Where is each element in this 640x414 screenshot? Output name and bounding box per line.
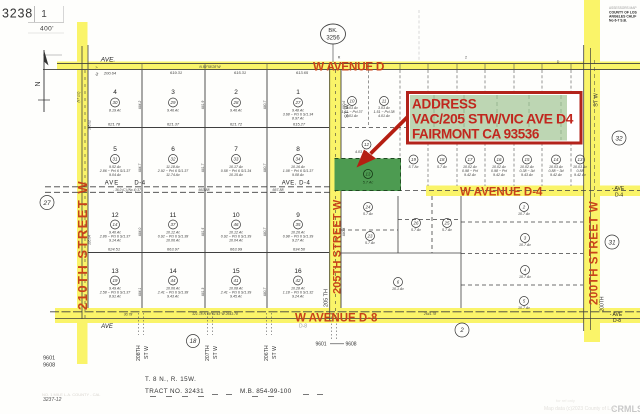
svg-text:W AVENUE D-8: W AVENUE D-8 (295, 313, 378, 325)
svg-text:N: N (35, 81, 42, 86)
svg-text:1: 1 (296, 89, 300, 96)
svg-text:2: 2 (234, 89, 238, 96)
svg-text:661.3: 661.3 (201, 288, 205, 297)
svg-text:8: 8 (296, 146, 300, 153)
svg-text:19: 19 (113, 278, 118, 283)
svg-text:46: 46 (234, 222, 239, 227)
svg-text:AVE: AVE (100, 324, 114, 330)
svg-text:5.7 Ac: 5.7 Ac (365, 241, 375, 245)
svg-text:ST W: ST W (345, 103, 351, 117)
svg-text:667.88: 667.88 (273, 188, 284, 192)
svg-text:4: 4 (113, 89, 117, 96)
svg-text:- AVE: - AVE (612, 186, 625, 192)
svg-text:9601: 9601 (315, 342, 326, 348)
svg-text:3238: 3238 (2, 7, 33, 21)
svg-text:29: 29 (170, 100, 176, 105)
svg-text:205 TH: 205 TH (324, 289, 330, 307)
svg-text:9.42 Ac: 9.42 Ac (493, 173, 505, 177)
svg-text:660.7: 660.7 (263, 228, 267, 237)
svg-text:664.0: 664.0 (138, 228, 142, 237)
svg-text:9601: 9601 (43, 356, 55, 362)
svg-text:9.27 Ac: 9.27 Ac (292, 239, 304, 243)
svg-text:621.37: 621.37 (167, 122, 180, 127)
svg-text:661.5: 661.5 (201, 228, 205, 237)
svg-text:12: 12 (111, 212, 119, 219)
svg-text:615.31: 615.31 (234, 70, 246, 75)
svg-text:31: 31 (608, 239, 616, 246)
svg-text:10.7 Ac: 10.7 Ac (519, 275, 531, 279)
svg-text:9.14 Ac: 9.14 Ac (109, 239, 121, 243)
svg-text:10.1 Ac: 10.1 Ac (392, 287, 404, 291)
svg-text:32: 32 (615, 135, 623, 142)
svg-text:27: 27 (42, 200, 51, 207)
svg-text:4.01 Ac: 4.01 Ac (378, 114, 390, 118)
svg-text:BK.: BK. (328, 28, 338, 34)
svg-text:5.7 Ac: 5.7 Ac (408, 165, 418, 169)
svg-text:10.04 Ac: 10.04 Ac (229, 239, 243, 243)
svg-text:FAIRMONT CA 93536: FAIRMONT CA 93536 (412, 127, 540, 142)
svg-text:35: 35 (296, 222, 301, 227)
svg-text:No 6-7 S.B.: No 6-7 S.B. (609, 19, 627, 23)
svg-text:10.7 Ac: 10.7 Ac (518, 212, 530, 216)
svg-text:15: 15 (525, 157, 530, 162)
svg-text:(97 1/2): (97 1/2) (77, 92, 81, 103)
svg-text:26: 26 (413, 221, 419, 226)
svg-text:D-4: D-4 (134, 181, 145, 187)
svg-text:16: 16 (497, 157, 502, 162)
svg-text:663.99: 663.99 (230, 247, 243, 252)
svg-text:W AVENUE D: W AVENUE D (313, 60, 385, 74)
svg-text:11: 11 (170, 212, 177, 219)
svg-text:28: 28 (233, 100, 239, 105)
svg-text:16: 16 (294, 268, 302, 275)
svg-text:24: 24 (365, 205, 371, 210)
svg-text:15: 15 (232, 268, 240, 275)
svg-text:42: 42 (296, 278, 301, 283)
svg-text:2: 2 (465, 56, 467, 60)
svg-text:400': 400' (40, 26, 54, 33)
svg-text:663.97: 663.97 (167, 247, 180, 252)
svg-text:14: 14 (554, 157, 559, 162)
svg-text:200TH STREET W: 200TH STREET W (589, 201, 601, 305)
svg-text:613.65: 613.65 (296, 70, 309, 75)
svg-text:W AVENUE D-4: W AVENUE D-4 (460, 187, 543, 199)
svg-text:9.46 Ac: 9.46 Ac (230, 109, 242, 113)
svg-text:44: 44 (171, 278, 176, 283)
svg-text:9608: 9608 (43, 363, 55, 369)
svg-text:17: 17 (468, 157, 473, 162)
svg-text:N 89°58'28''W: N 89°58'28''W (199, 65, 221, 69)
svg-text:AVE: AVE (105, 181, 120, 187)
svg-text:5.7 Ac: 5.7 Ac (363, 212, 373, 216)
svg-text:M.B. 854-99-100: M.B. 854-99-100 (240, 388, 292, 395)
svg-text:7: 7 (234, 146, 238, 153)
svg-text:661.9: 661.9 (201, 101, 205, 110)
svg-text:200TH: 200TH (600, 296, 606, 311)
svg-text:ASSESSORS MAP: ASSESSORS MAP (609, 6, 636, 10)
svg-text:31: 31 (113, 157, 118, 162)
svg-text:8.97 Ac: 8.97 Ac (292, 117, 304, 121)
svg-text:9.42 Ac: 9.42 Ac (550, 173, 562, 177)
svg-text:30.78: 30.78 (124, 313, 133, 317)
svg-text:19: 19 (411, 157, 416, 162)
svg-text:9: 9 (296, 212, 300, 219)
svg-text:- 36.0 (C) (No 4) 37 -: - 36.0 (C) (No 4) 37 - (113, 188, 143, 192)
svg-text:TRACT NO. 32431: TRACT NO. 32431 (145, 388, 204, 395)
svg-text:2: 2 (459, 328, 464, 334)
svg-text:9.43 Ac: 9.43 Ac (521, 173, 533, 177)
svg-text:8.91 Ac: 8.91 Ac (109, 295, 121, 299)
svg-text:9.08 Ac: 9.08 Ac (292, 173, 304, 177)
svg-text:663.88: 663.88 (199, 188, 210, 192)
svg-text:634.50: 634.50 (293, 247, 306, 252)
svg-text:ST W: ST W (272, 346, 278, 359)
svg-text:30: 30 (113, 100, 118, 105)
svg-text:207TH: 207TH (205, 345, 211, 361)
svg-text:D: D (557, 60, 560, 64)
svg-text:T. 8 N., R. 15W.: T. 8 N., R. 15W. (145, 376, 196, 383)
svg-text:D-4: D-4 (615, 193, 623, 199)
svg-text:12: 12 (364, 142, 369, 147)
svg-text:41: 41 (234, 278, 239, 283)
svg-text:10.7 Ac: 10.7 Ac (518, 306, 530, 310)
svg-text:9.46 Ac: 9.46 Ac (167, 109, 179, 113)
svg-text:9608: 9608 (345, 342, 356, 348)
svg-text:9.42 Ac: 9.42 Ac (574, 173, 586, 177)
svg-text:10.15 Ac: 10.15 Ac (229, 173, 243, 177)
svg-text:10.06 Ac: 10.06 Ac (166, 239, 180, 243)
svg-text:664.7: 664.7 (138, 164, 142, 173)
svg-text:25: 25 (444, 221, 450, 226)
svg-text:9.42 Ac: 9.42 Ac (464, 173, 476, 177)
svg-text:23: 23 (367, 234, 373, 239)
svg-text:661.7: 661.7 (201, 164, 205, 173)
svg-text:321.78 N 89°51'43''W 2643.: 321.78 N 89°51'43''W 2643.78 (192, 312, 238, 316)
svg-text:206TH: 206TH (264, 345, 270, 361)
svg-text:3: 3 (171, 89, 175, 96)
svg-text:27: 27 (295, 100, 301, 105)
svg-text:10: 10 (350, 99, 355, 104)
svg-text:621.78: 621.78 (108, 122, 121, 127)
svg-text:33: 33 (234, 157, 239, 162)
svg-text:D-8: D-8 (613, 318, 621, 324)
svg-text:5: 5 (113, 146, 117, 153)
svg-text:3256: 3256 (326, 36, 340, 42)
svg-text:D-8: D-8 (299, 324, 307, 330)
svg-text:ST W: ST W (144, 346, 150, 359)
svg-text:AVE.: AVE. (100, 57, 116, 64)
svg-text:624.51: 624.51 (108, 247, 120, 252)
svg-text:34: 34 (296, 157, 301, 162)
svg-text:660.7: 660.7 (263, 164, 267, 173)
svg-text:18: 18 (440, 157, 445, 162)
svg-text:8.19 Ac: 8.19 Ac (109, 109, 121, 113)
svg-text:13: 13 (366, 172, 371, 177)
svg-text:208TH: 208TH (136, 345, 142, 361)
svg-text:AVE. D-4: AVE. D-4 (282, 181, 311, 187)
svg-text:ST W: ST W (594, 92, 600, 106)
svg-text:9.43 Ac: 9.43 Ac (167, 295, 179, 299)
svg-text:205TH STREET W: 205TH STREET W (332, 199, 344, 294)
svg-text:10.7 Ac: 10.7 Ac (519, 243, 531, 247)
svg-text:621.72: 621.72 (230, 122, 243, 127)
svg-text:2: 2 (522, 205, 526, 210)
svg-text:3237-12: 3237-12 (43, 397, 62, 403)
svg-text:615.27: 615.27 (293, 122, 306, 127)
svg-text:105.02: 105.02 (88, 120, 92, 130)
svg-text:9.45 Ac: 9.45 Ac (230, 295, 242, 299)
svg-text:ADDRESS: ADDRESS (412, 97, 477, 112)
svg-text:9.04 Ac: 9.04 Ac (109, 173, 121, 177)
svg-text:660.7: 660.7 (263, 288, 267, 297)
svg-text:13: 13 (578, 157, 583, 162)
svg-text:5.7 Ac: 5.7 Ac (437, 165, 447, 169)
svg-text:200.64: 200.64 (103, 71, 117, 76)
svg-text:10: 10 (232, 212, 240, 219)
svg-text:619.31: 619.31 (170, 70, 182, 75)
svg-text:13: 13 (111, 268, 119, 275)
svg-text:14: 14 (113, 222, 118, 227)
svg-text:664.2: 664.2 (138, 101, 142, 110)
svg-text:14: 14 (169, 268, 177, 275)
svg-text:660.7: 660.7 (263, 101, 267, 110)
svg-text:5.7 Ac: 5.7 Ac (411, 228, 421, 232)
svg-text:11: 11 (382, 99, 387, 104)
svg-text:664.1: 664.1 (138, 288, 142, 297)
svg-text:37: 37 (171, 222, 176, 227)
svg-text:Map data (c)2023 County of L.A: Map data (c)2023 County of L.A. (544, 406, 616, 412)
svg-text:18: 18 (190, 339, 197, 345)
svg-text:VAC/205 STW/VIC AVE D4: VAC/205 STW/VIC AVE D4 (412, 111, 574, 127)
svg-text:32: 32 (171, 157, 176, 162)
svg-text:9.24 Ac: 9.24 Ac (292, 295, 304, 299)
svg-text:6: 6 (171, 146, 175, 153)
svg-text:NO. 1 MILE L.A. COUNTY - C: NO. 1 MILE L.A. COUNTY - CAL (42, 392, 101, 397)
svg-text:11.74 Ac: 11.74 Ac (166, 173, 180, 177)
svg-text:ST W: ST W (213, 346, 219, 359)
svg-text:2641.78: 2641.78 (423, 312, 436, 316)
svg-text:5.7 Ac: 5.7 Ac (363, 181, 374, 185)
svg-text:1: 1 (41, 9, 47, 20)
svg-text:5.7 Ac: 5.7 Ac (442, 228, 452, 232)
svg-text:210TH STREET W: 210TH STREET W (75, 180, 90, 310)
svg-text:for ref only: for ref only (556, 398, 575, 403)
